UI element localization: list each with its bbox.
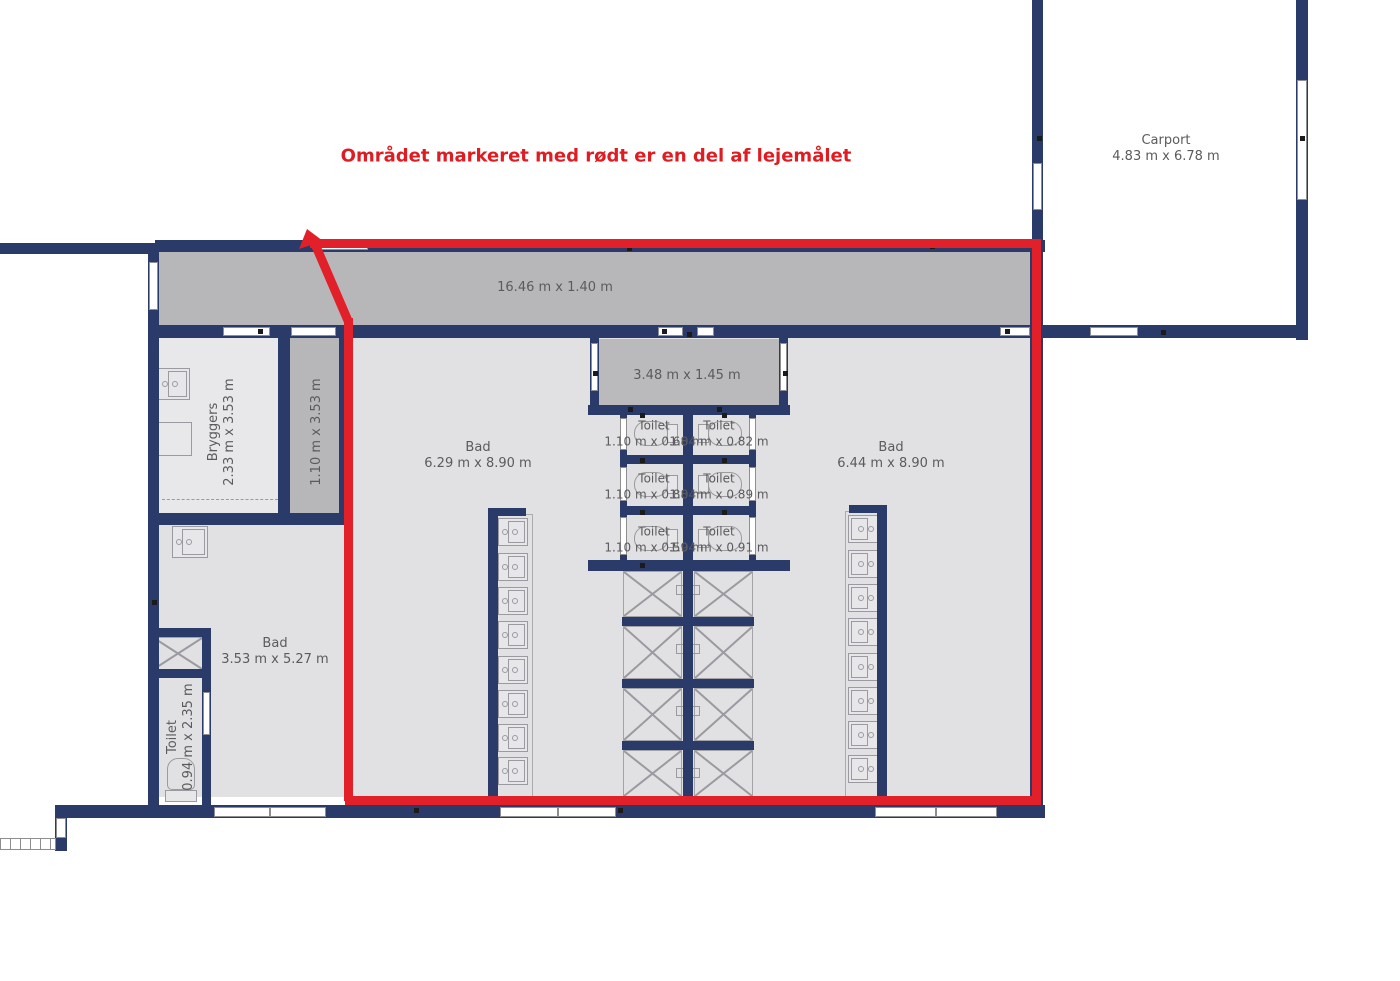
room-dims: 6.29 m x 8.90 m — [424, 456, 531, 472]
room-label-hallway: 16.46 m x 1.40 m — [497, 280, 613, 296]
room-label-entry: 3.48 m x 1.45 m — [633, 368, 740, 384]
room-dims: 2.33 m x 3.53 m — [222, 378, 238, 485]
room-label-bad-right: Bad 6.44 m x 8.90 m — [837, 440, 944, 473]
room-dims: 4.83 m x 6.78 m — [1112, 149, 1219, 165]
room-dims: 3.53 m x 5.27 m — [221, 652, 328, 668]
room-dims: 1.10 m x 3.53 m — [309, 378, 325, 485]
room-name: Carport — [1112, 133, 1219, 149]
room-name: Toilet — [669, 471, 768, 487]
room-dims: 1.04 m x 0.89 m — [669, 487, 768, 503]
room-label-toilet-4: Toilet 1.04 m x 0.89 m — [669, 471, 768, 502]
room-name: Bad — [424, 440, 531, 456]
room-dims: 1.04 m x 0.82 m — [669, 434, 768, 450]
room-label-toilet-2: Toilet 1.04 m x 0.82 m — [669, 418, 768, 449]
room-name: Bad — [837, 440, 944, 456]
room-name: Toilet — [669, 418, 768, 434]
room-label-bad-left: Bad 6.29 m x 8.90 m — [424, 440, 531, 473]
room-label-bryggers: Bryggers 2.33 m x 3.53 m — [206, 378, 239, 485]
room-dims: 6.44 m x 8.90 m — [837, 456, 944, 472]
room-label-toilet-small: Toilet 0.94 m x 2.35 m — [165, 683, 198, 790]
floor-plan: Området markeret med rødt er en del af l… — [0, 0, 1400, 981]
room-label-toilet-6: Toilet 1.04 m x 0.91 m — [669, 524, 768, 555]
room-name: Bad — [221, 636, 328, 652]
room-dims: 0.94 m x 2.35 m — [181, 683, 197, 790]
room-name: Toilet — [165, 683, 181, 790]
room-name: Toilet — [669, 524, 768, 540]
room-dims: 16.46 m x 1.40 m — [497, 280, 613, 296]
page-title: Området markeret med rødt er en del af l… — [341, 146, 852, 167]
room-dims: 3.48 m x 1.45 m — [633, 368, 740, 384]
room-dims: 1.04 m x 0.91 m — [669, 540, 768, 556]
room-label-bad-small: Bad 3.53 m x 5.27 m — [221, 636, 328, 669]
room-label-carport: Carport 4.83 m x 6.78 m — [1112, 133, 1219, 166]
room-label-closet: 1.10 m x 3.53 m — [309, 378, 325, 485]
room-name: Bryggers — [206, 378, 222, 485]
